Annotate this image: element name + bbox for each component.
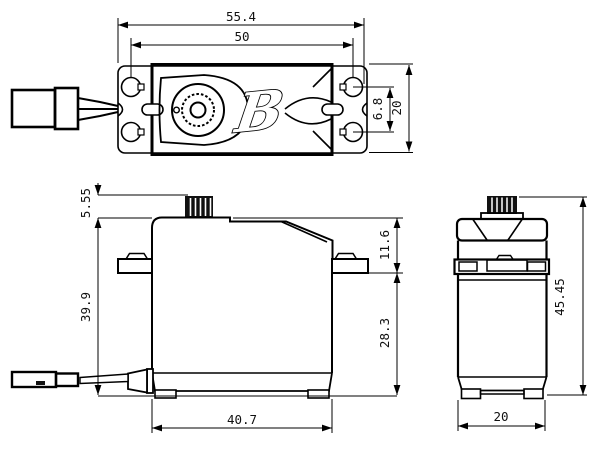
- dim-body-length-value: 40.7: [227, 412, 257, 427]
- spline-shaft-side: [185, 196, 213, 218]
- dim-body-height: 39.9: [78, 218, 397, 396]
- top-cap-end: [457, 219, 547, 241]
- dim-total-height-value: 45.45: [552, 278, 567, 316]
- case-top-profile: [152, 218, 333, 260]
- dim-body-height-value: 39.9: [78, 292, 93, 322]
- cap-chamfers: [473, 220, 522, 241]
- dim-flange-to-bottom-value: 28.3: [377, 318, 392, 348]
- foot-left: [155, 390, 176, 398]
- end-flange: [455, 256, 550, 281]
- dim-flange-to-bottom: 28.3: [377, 273, 397, 395]
- spline-shaft-end: [481, 196, 523, 219]
- dim-top-width-value: 20: [389, 100, 404, 115]
- dim-shaft-height-value: 5.55: [78, 188, 93, 218]
- side-view: [12, 196, 368, 398]
- dim-overall-length-value: 55.4: [226, 9, 256, 24]
- dim-end-width-value: 20: [493, 409, 508, 424]
- dim-top-to-flange-value: 11.6: [377, 230, 392, 260]
- dim-hole-spacing: 50: [131, 29, 353, 78]
- dim-top-to-flange: 11.6: [233, 218, 403, 273]
- drawing-canvas: B: [0, 0, 600, 450]
- end-foot-left: [462, 389, 481, 399]
- dim-total-height: 45.45: [519, 197, 587, 395]
- top-chamfer-line: [281, 222, 327, 243]
- output-shaft-top: [172, 84, 224, 136]
- bottom-cap-side: [152, 373, 332, 391]
- logo-letter: B: [230, 78, 288, 146]
- dim-hole-spacing-value: 50: [234, 29, 249, 44]
- dim-hole-offset-value: 6.8: [370, 98, 385, 121]
- brand-logo: B: [230, 78, 288, 146]
- dim-shaft-height: 5.55: [78, 183, 188, 218]
- end-view: [455, 196, 550, 399]
- wire-exit: [12, 369, 153, 393]
- top-view: B: [12, 65, 367, 155]
- case-sides: [152, 273, 332, 373]
- end-foot-right: [524, 389, 543, 399]
- dim-body-length: 40.7: [152, 399, 332, 433]
- foot-right: [308, 390, 329, 398]
- side-flanges: [118, 254, 368, 274]
- connector-plug: [12, 88, 118, 129]
- dim-end-width: 20: [458, 400, 545, 431]
